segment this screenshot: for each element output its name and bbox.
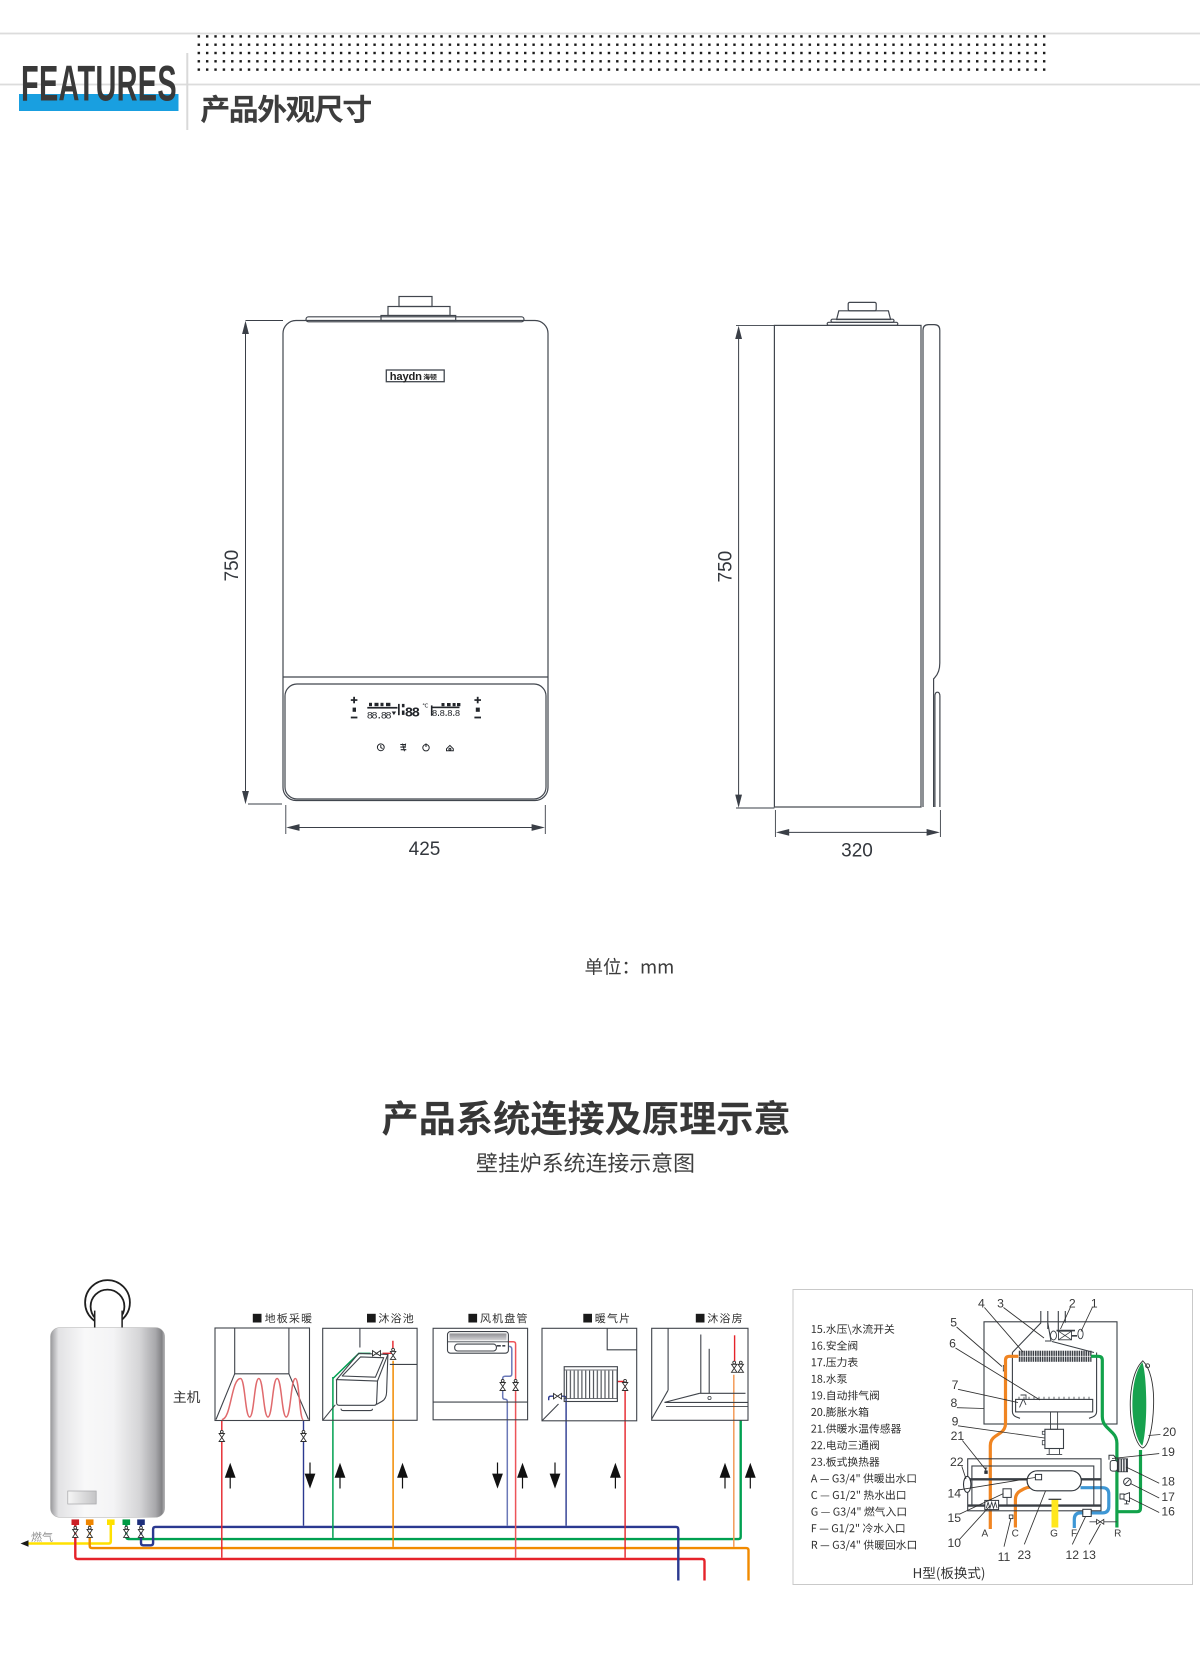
svg-text:23: 23 (1018, 1548, 1032, 1562)
svg-text:11: 11 (998, 1550, 1011, 1564)
svg-text:15: 15 (948, 1511, 962, 1525)
svg-text:10: 10 (948, 1536, 962, 1550)
svg-text:haydn: haydn (390, 371, 422, 383)
svg-text:2: 2 (1069, 1296, 1076, 1310)
svg-text:21: 21 (951, 1429, 965, 1443)
svg-text:R: R (1114, 1529, 1121, 1540)
svg-text:17: 17 (1161, 1490, 1175, 1504)
svg-text:G: G (1050, 1529, 1058, 1540)
svg-text:℃: ℃ (422, 703, 428, 709)
svg-text:7: 7 (952, 1378, 959, 1392)
svg-text:9: 9 (952, 1414, 959, 1428)
svg-text:8: 8 (951, 1396, 958, 1410)
svg-text:18: 18 (1161, 1475, 1175, 1489)
svg-text:88: 88 (405, 705, 420, 721)
svg-text:19: 19 (1161, 1445, 1175, 1459)
svg-text:FEATURES: FEATURES (21, 55, 177, 111)
svg-text:8.8.8.8: 8.8.8.8 (432, 708, 460, 719)
svg-text:13: 13 (1082, 1548, 1096, 1562)
svg-text:14: 14 (948, 1486, 962, 1500)
svg-text:88.88: 88.88 (367, 711, 392, 723)
svg-text:425: 425 (409, 839, 441, 860)
svg-text:22: 22 (950, 1455, 964, 1469)
svg-text:20: 20 (1163, 1425, 1177, 1439)
svg-text:A: A (981, 1529, 988, 1540)
svg-text:F: F (1071, 1529, 1077, 1540)
svg-text:750: 750 (716, 551, 737, 583)
svg-text:750: 750 (222, 550, 243, 582)
svg-text:C: C (1012, 1529, 1019, 1540)
svg-text:1: 1 (1091, 1296, 1098, 1310)
svg-text:3: 3 (997, 1296, 1004, 1310)
svg-text:16: 16 (1161, 1505, 1175, 1519)
svg-text:6: 6 (949, 1337, 956, 1351)
svg-text:4: 4 (978, 1296, 985, 1310)
svg-text:5: 5 (950, 1316, 957, 1330)
svg-text:12: 12 (1066, 1548, 1080, 1562)
svg-text:320: 320 (841, 841, 873, 862)
